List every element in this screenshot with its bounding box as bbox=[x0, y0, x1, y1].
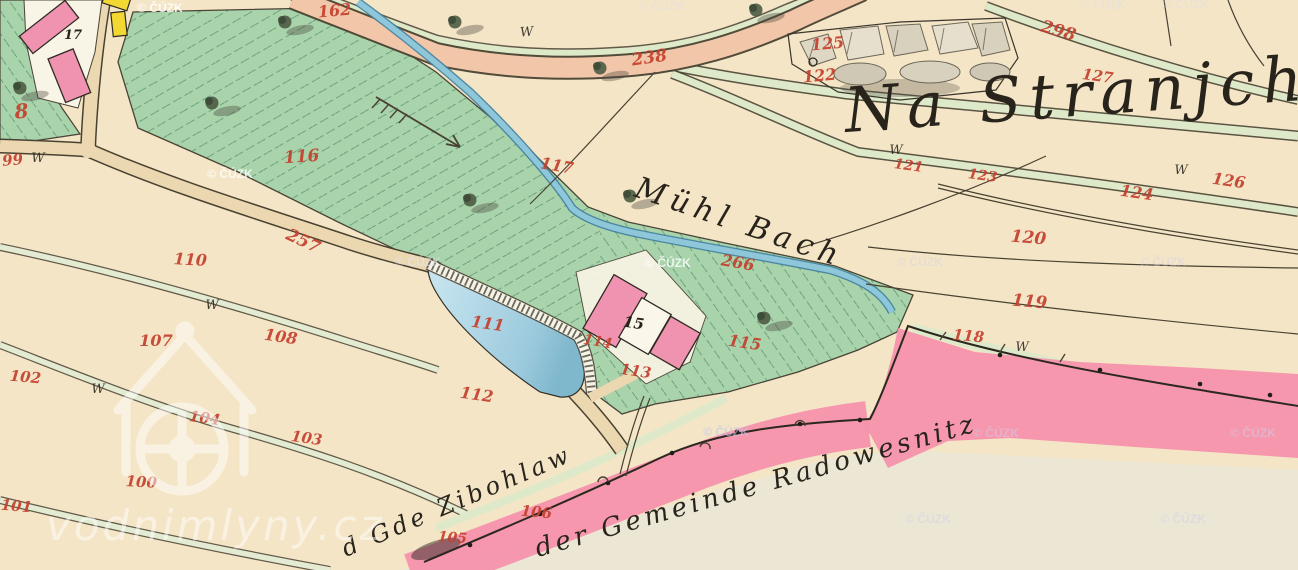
cadastral-map-viewport: Na Stranjch Mühl Bach der Gemeinde Radow… bbox=[0, 0, 1298, 570]
parcel-number: 110 bbox=[173, 249, 207, 270]
yellow-building-1 bbox=[111, 11, 127, 36]
meadow-symbol-w: W bbox=[31, 151, 46, 166]
parcel-number: 102 bbox=[9, 367, 42, 388]
meadow-symbol-w: W bbox=[1174, 163, 1189, 178]
parcel-number: 125 bbox=[810, 33, 845, 55]
cuzk-watermark: © ČÚZK bbox=[395, 254, 441, 269]
meadow-symbol-w: W bbox=[889, 143, 904, 158]
parcel-number: 8 bbox=[12, 98, 29, 123]
cuzk-watermark: © ČÚZK bbox=[645, 255, 691, 270]
cadastral-map-canvas: Na Stranjch Mühl Bach der Gemeinde Radow… bbox=[0, 0, 1298, 570]
building-number: 17 bbox=[64, 28, 82, 43]
parcel-number: 106 bbox=[520, 502, 553, 523]
parcel-number: 107 bbox=[139, 331, 172, 350]
cuzk-watermark: © ČÚZK bbox=[1080, 0, 1126, 12]
parcel-number: 101 bbox=[0, 496, 33, 517]
parcel-number: 105 bbox=[437, 529, 468, 547]
cuzk-watermark: © ČÚZK bbox=[905, 511, 951, 526]
meadow-symbol-w: W bbox=[205, 298, 220, 313]
cuzk-watermark: © ČÚZK bbox=[1163, 0, 1209, 11]
parcel-number: 162 bbox=[317, 0, 352, 21]
meadow-symbol-w: W bbox=[91, 382, 106, 397]
building-number: 15 bbox=[622, 313, 645, 334]
parcel-number: 118 bbox=[952, 326, 985, 347]
parcel-number: 120 bbox=[1010, 227, 1047, 250]
meadow-symbol-w: W bbox=[1015, 340, 1030, 355]
parcel-number: 122 bbox=[802, 65, 837, 87]
cuzk-watermark: © ČÚZK bbox=[639, 0, 685, 13]
parcel-number: 116 bbox=[283, 146, 320, 168]
parcel-number: 99 bbox=[1, 150, 24, 170]
cuzk-watermark: © ČÚZK bbox=[207, 166, 253, 181]
parcel-number: 119 bbox=[1011, 291, 1048, 314]
cuzk-watermark: © ČÚZK bbox=[1160, 511, 1206, 526]
cuzk-watermark: © ČÚZK bbox=[137, 0, 183, 15]
cuzk-watermark: © ČÚZK bbox=[1230, 425, 1276, 440]
cuzk-watermark: © ČÚZK bbox=[1140, 254, 1186, 269]
cuzk-watermark: © ČÚZK bbox=[897, 254, 943, 269]
site-watermark-text: vodnimlyny.cz bbox=[46, 501, 385, 550]
cuzk-watermark: © ČÚZK bbox=[703, 424, 749, 439]
cuzk-watermark: © ČÚZK bbox=[973, 425, 1019, 440]
